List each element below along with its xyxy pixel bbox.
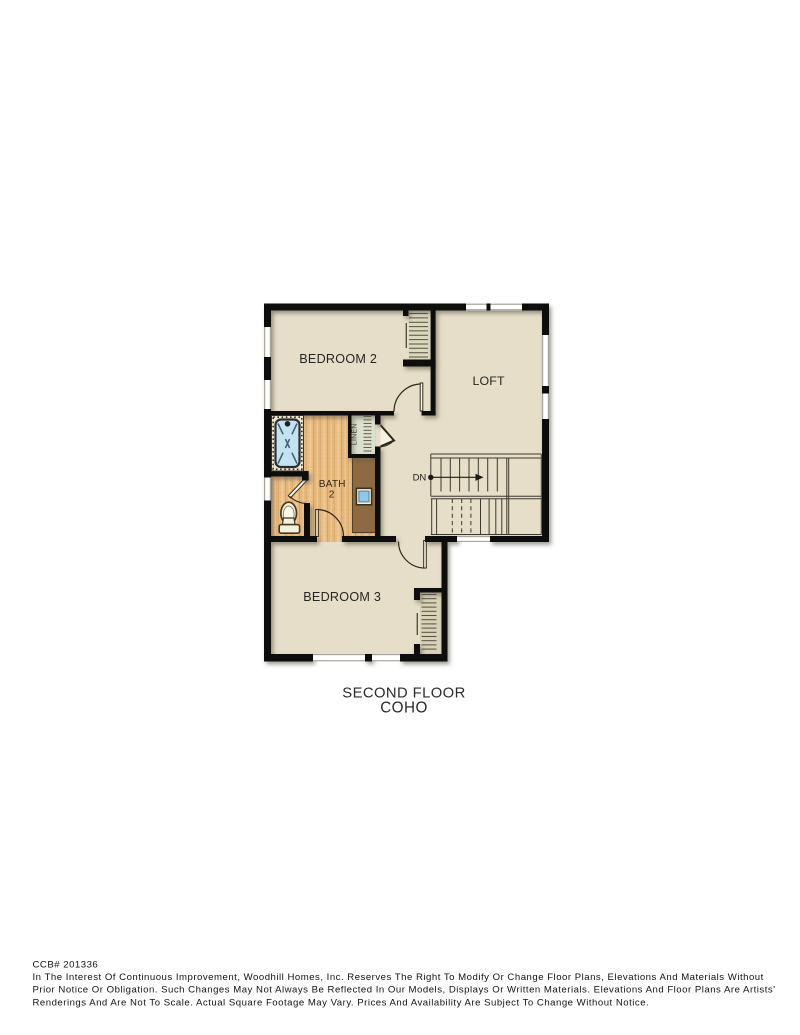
svg-text:BEDROOM 3: BEDROOM 3 <box>303 590 381 604</box>
svg-text:Renderings And Are Not To Scal: Renderings And Are Not To Scale. Actual … <box>33 998 650 1009</box>
svg-text:COHO: COHO <box>380 699 428 716</box>
svg-text:DN: DN <box>413 473 427 484</box>
svg-text:CCB# 201336: CCB# 201336 <box>33 960 99 971</box>
svg-text:LINEN: LINEN <box>352 423 359 445</box>
svg-text:LOFT: LOFT <box>473 374 505 388</box>
svg-text:2: 2 <box>329 489 335 500</box>
svg-text:In The Interest Of Continuous: In The Interest Of Continuous Improvemen… <box>33 972 764 983</box>
svg-text:BATH: BATH <box>319 479 346 490</box>
svg-text:Prior Notice Or Obligation. Su: Prior Notice Or Obligation. Such Changes… <box>33 985 776 996</box>
svg-text:BEDROOM 2: BEDROOM 2 <box>299 352 377 366</box>
